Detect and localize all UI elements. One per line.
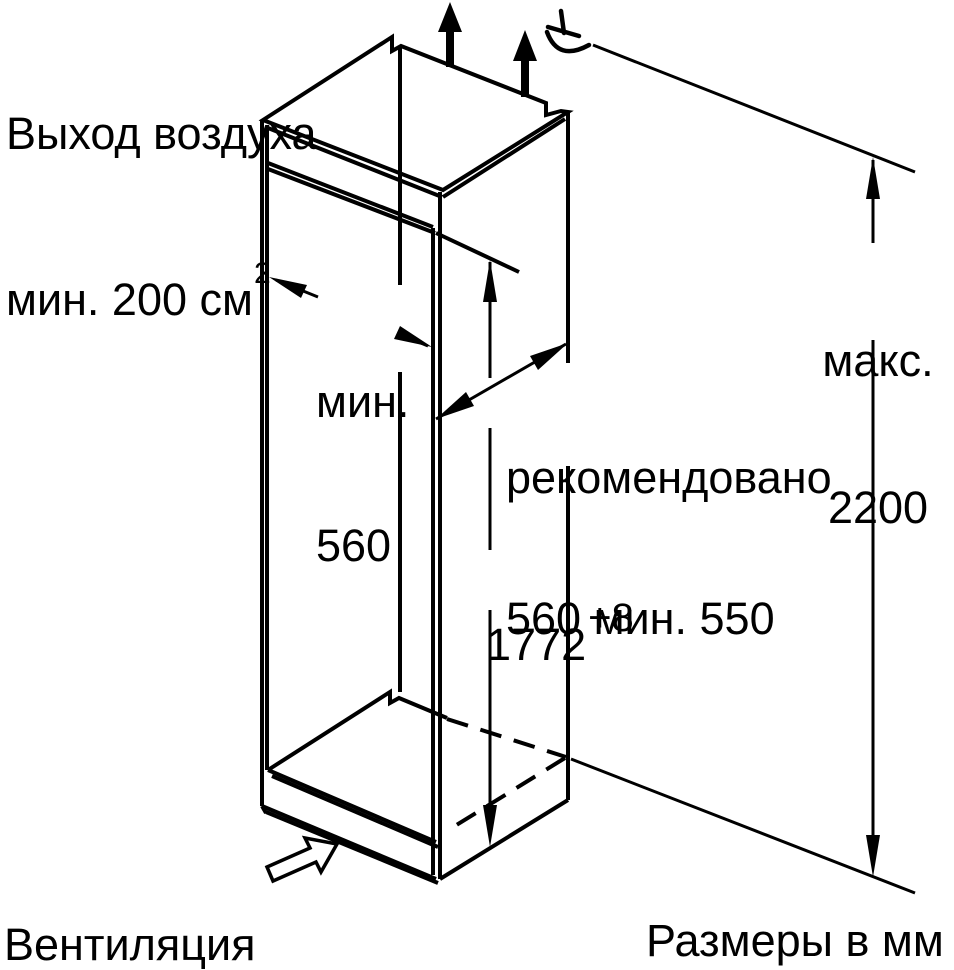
top-extension-line [593, 45, 915, 172]
max-height-arrow-down-icon [866, 835, 880, 877]
airflow-curve-icon [547, 11, 589, 51]
niche-height-value: 1772 [486, 619, 586, 670]
max-height-line2: 2200 [808, 483, 948, 532]
air-outlet-line1: Выход воздуха [6, 108, 317, 160]
max-height-dimension-label: макс. 2200 [808, 238, 948, 630]
installation-diagram: Выход воздуха мин. 200 см2 мин. 560 реко… [0, 0, 954, 970]
bottom-extension-line [571, 759, 915, 893]
max-height-arrow-up-icon [866, 157, 880, 199]
niche-height-arrow-down-icon [483, 805, 497, 847]
niche-height-dimension-label: 1772+8 [436, 556, 632, 720]
max-height-line1: макс. [808, 336, 948, 385]
air-outlet-label: Выход воздуха мин. 200 см2 [6, 4, 317, 430]
niche-width-line2: 560 [316, 522, 409, 570]
plinth-vent-label: Вентиляция через цоколь мин. 200 см2 [4, 820, 279, 970]
niche-width-dimension-label: мин. 560 [316, 282, 409, 666]
airflow-symbols [438, 2, 589, 97]
floor-face [268, 692, 447, 770]
air-outlet-line2: мин. 200 см [6, 274, 253, 325]
airflow-up-arrow-icon [513, 30, 537, 97]
niche-height-tolerance: +8 [588, 596, 634, 640]
depth-line1: рекомендовано [506, 454, 832, 501]
plinth-vent-line1: Вентиляция [4, 920, 279, 970]
air-outlet-superscript: 2 [254, 257, 271, 290]
niche-height-arrow-up-icon [483, 260, 497, 302]
airflow-up-arrow-icon [438, 2, 462, 67]
niche-width-line1: мин. [316, 378, 409, 426]
units-note: Размеры в мм [646, 916, 944, 966]
